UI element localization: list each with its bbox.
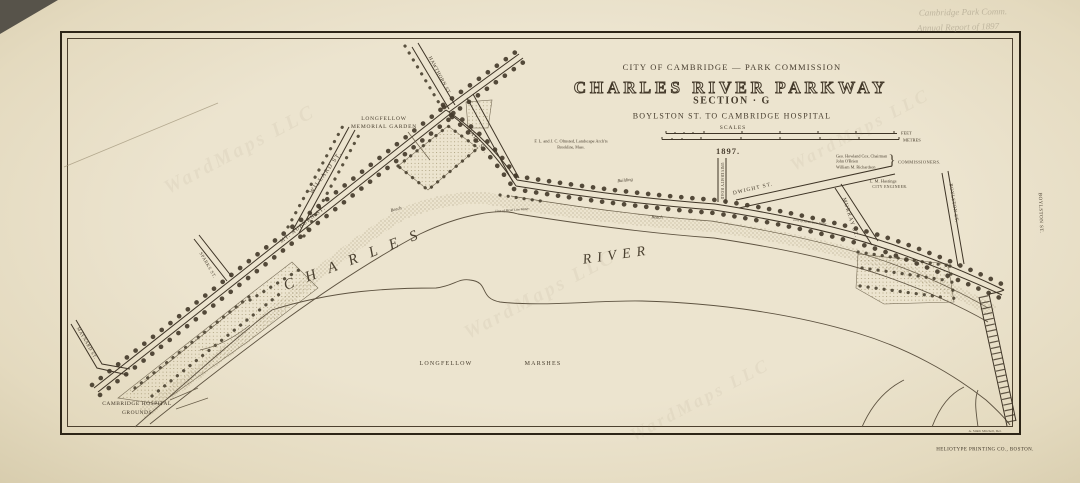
printer-credit: HELIOTYPE PRINTING CO., BOSTON. xyxy=(936,448,1034,453)
subtitle: BOYLSTON ST. TO CAMBRIDGE HOSPITAL xyxy=(633,112,831,121)
commission-heading: CITY OF CAMBRIDGE — PARK COMMISSION xyxy=(623,62,842,72)
tree-row-diagonal-lower xyxy=(100,117,452,395)
commissioner-3: William M. Richardson xyxy=(836,164,876,169)
commissioner-2: John O'Brien xyxy=(836,159,858,164)
map-date: 1897. xyxy=(716,146,740,156)
section-label: SECTION · G xyxy=(693,96,771,107)
marsh-label-marshes: MARSHES xyxy=(525,361,562,367)
hospital-grounds-label-2: GROUNDS xyxy=(122,410,152,416)
scanned-map-page: { "colors": { "ink": "#3e3426", "paper":… xyxy=(0,0,1080,483)
street-label-university-road: UNIVERSITY ROAD xyxy=(720,162,724,199)
marsh-label-longfellow: LONGFELLOW xyxy=(420,361,473,367)
beach-label-east: Beach xyxy=(651,214,662,219)
scale-metres-label: METRES xyxy=(903,137,921,142)
commissioners-label: COMMISSIONERS. xyxy=(898,159,941,164)
engineer-name: L. M. Hastings xyxy=(870,178,897,183)
engineer-title: CITY ENGINEER. xyxy=(872,185,907,189)
pencil-note-line1: Cambridge Park Comm. xyxy=(919,6,1007,18)
paper-crease xyxy=(64,103,218,167)
commissioners-brace: } xyxy=(888,153,895,170)
commissioner-1: Geo. Howland Cox, Chairman xyxy=(836,153,887,158)
architects-line1: F. L. and J. C. Olmsted, Landscape Arch'… xyxy=(534,139,607,144)
river-channel-lines xyxy=(862,380,978,427)
hospital-grounds-label-1: CAMBRIDGE HOSPITAL xyxy=(102,401,172,407)
hawthorn-street xyxy=(412,43,455,109)
scale-feet-label: FEET xyxy=(901,131,912,136)
scales-label: SCALES xyxy=(720,125,746,131)
architects-line2: Brookline, Mass. xyxy=(557,145,584,150)
memorial-garden-label-1: LONGFELLOW xyxy=(361,116,407,122)
memorial-garden-label-2: MEMORIAL GARDEN xyxy=(351,124,417,130)
map-drawing xyxy=(0,0,1080,483)
delineator-credit: A. Smith Mitchell, Del. xyxy=(968,429,1001,433)
